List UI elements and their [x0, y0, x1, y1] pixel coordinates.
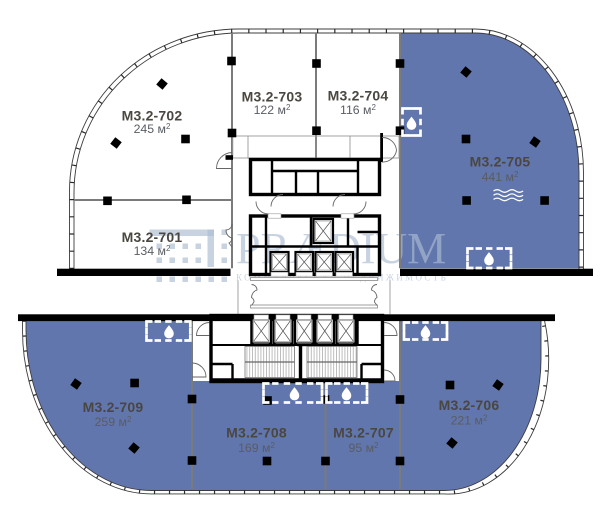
svg-text:116 м2: 116 м2: [340, 103, 376, 117]
svg-text:259 м2: 259 м2: [95, 415, 132, 429]
svg-text:122 м2: 122 м2: [254, 103, 291, 117]
svg-text:M3.2-705: M3.2-705: [470, 154, 531, 170]
svg-text:221 м2: 221 м2: [451, 414, 488, 428]
svg-text:245 м2: 245 м2: [134, 122, 171, 136]
svg-text:134 м2: 134 м2: [134, 244, 171, 258]
svg-text:M3.2-704: M3.2-704: [328, 87, 389, 103]
svg-text:M3.2-702: M3.2-702: [122, 107, 183, 123]
svg-text:M3.2-701: M3.2-701: [122, 229, 183, 245]
svg-text:441 м2: 441 м2: [482, 170, 519, 184]
svg-text:M3.2-707: M3.2-707: [333, 425, 394, 441]
svg-text:M3.2-709: M3.2-709: [83, 399, 144, 415]
svg-text:169 м2: 169 м2: [238, 441, 275, 455]
svg-text:M3.2-708: M3.2-708: [226, 425, 287, 441]
svg-text:M3.2-706: M3.2-706: [439, 397, 500, 413]
